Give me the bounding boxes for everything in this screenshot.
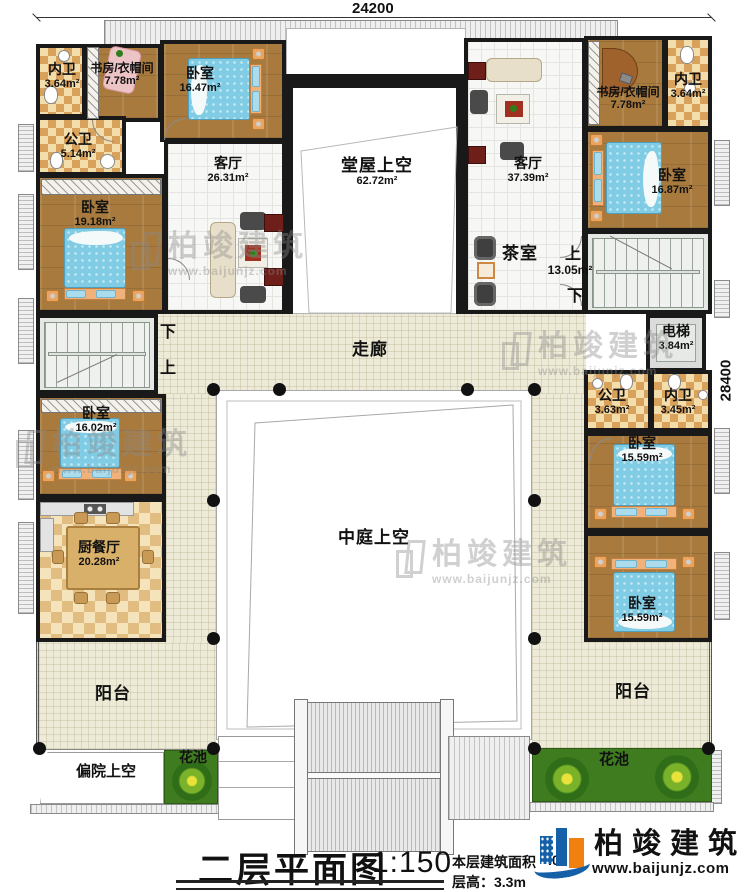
pillow (645, 560, 667, 568)
toilet (680, 46, 694, 64)
stairwell-east (584, 230, 712, 314)
entrance-roof-ridge (302, 772, 448, 779)
label-bath-w: 公卫5.14m² (61, 132, 96, 160)
plant-pot (510, 105, 517, 112)
stair-up-label-west: 上 (160, 354, 176, 378)
plant (655, 755, 699, 799)
pillow (615, 560, 637, 568)
sofa (486, 58, 542, 82)
pillow (66, 290, 86, 298)
entrance-roof-right (448, 736, 530, 820)
side-table (264, 214, 284, 232)
column (207, 632, 220, 645)
dining-chair (142, 550, 154, 564)
nightstand (594, 556, 607, 568)
nightstand (252, 118, 265, 130)
window-right-1 (714, 140, 730, 206)
label-bedroom-se2: 卧室15.59m² (622, 596, 663, 624)
closet-study-ne (588, 41, 600, 125)
coffee-table (496, 94, 530, 124)
label-study-ne: 书房/衣帽间7.78m² (596, 86, 659, 112)
floor-area-note: 本层建筑面积 (452, 852, 536, 872)
side-table (468, 62, 486, 80)
dining-chair (106, 512, 120, 524)
company-logo-name: 柏竣建筑 (594, 830, 746, 859)
plant-pot (116, 50, 123, 57)
label-bath-ne: 内卫3.64m² (671, 72, 706, 100)
label-living-e: 客厅37.39m² (508, 156, 549, 184)
window-left-4 (18, 430, 34, 500)
window-right-3 (714, 428, 730, 494)
railing-bottom-left (30, 804, 220, 814)
right-dimension-label: 28400 (717, 360, 734, 402)
label-corridor: 走廊 (352, 340, 388, 359)
label-living-w: 客厅26.31m² (208, 156, 249, 184)
nightstand (124, 470, 137, 482)
pillow (252, 91, 260, 112)
label-balcony-left: 阳台 (95, 684, 131, 703)
label-bath-se1: 公卫3.63m² (595, 388, 630, 416)
tea-chair (474, 282, 496, 306)
nightstand (252, 48, 265, 60)
pillow (615, 508, 637, 516)
window-right-2 (714, 280, 730, 318)
pillow (645, 508, 667, 516)
nightstand (590, 210, 603, 222)
plant (545, 757, 589, 801)
column (528, 383, 541, 396)
pillow (594, 152, 602, 175)
column (528, 494, 541, 507)
dining-chair (106, 592, 120, 604)
void-hall-opening-lines (287, 89, 465, 313)
floor-height-note: 层高：3.3m (452, 872, 526, 892)
dining-chair (52, 550, 64, 564)
closet-bedroom-w (41, 179, 161, 195)
entrance-roof-left (218, 736, 304, 820)
coffee-table (238, 238, 268, 268)
pillow (62, 470, 82, 478)
sink (698, 390, 708, 400)
nightstand (132, 290, 145, 302)
column (528, 632, 541, 645)
label-courtyard: 中庭上空 (338, 528, 410, 547)
drawing-title: 二层平面图 (198, 842, 388, 892)
column (273, 383, 286, 396)
title-underline-1 (176, 880, 444, 883)
window-left-1 (18, 124, 34, 172)
label-flowerbed-right: 花池 (599, 752, 629, 769)
nightstand (590, 134, 603, 146)
window-left-5 (18, 522, 34, 614)
label-study-nw: 书房/衣帽间7.78m² (90, 62, 153, 88)
tea-table (477, 262, 495, 279)
pillow (594, 179, 602, 202)
top-dimension-label: 24200 (352, 0, 394, 17)
label-tea-room: 茶室 (502, 244, 538, 263)
nightstand (594, 508, 607, 520)
label-void-hall: 堂屋上空62.72m² (341, 156, 413, 187)
courtyard-opening-lines (217, 391, 531, 739)
pillow (252, 66, 260, 87)
label-bedroom-se1: 卧室15.59m² (622, 436, 663, 464)
label-bedroom-w: 卧室19.18m² (75, 200, 116, 228)
pillow (92, 470, 112, 478)
column (702, 742, 715, 755)
top-dimension-line (36, 17, 712, 18)
window-right-4 (714, 552, 730, 620)
stair-down-label-west: 下 (160, 318, 176, 342)
bed-blanket-fold (69, 231, 123, 245)
label-elevator: 电梯3.84m² (659, 324, 694, 352)
railing-bottom-right (524, 802, 714, 812)
armchair (470, 90, 488, 114)
column (528, 742, 541, 755)
label-bedroom-ne: 卧室16.87m² (652, 168, 693, 196)
bed-mattress (64, 228, 126, 288)
floor-plan: 24200 28400 (0, 0, 750, 892)
dining-chair (74, 512, 88, 524)
stair-up-label-east: 上 (565, 240, 581, 264)
stairwell-west (36, 314, 158, 394)
nightstand (42, 470, 55, 482)
nightstand (682, 556, 695, 568)
side-table (264, 268, 284, 286)
column (207, 383, 220, 396)
armchair (240, 212, 266, 230)
label-bath-se2: 内卫3.45m² (661, 388, 696, 416)
plant-pot (250, 250, 257, 257)
nightstand (682, 508, 695, 520)
column (33, 742, 46, 755)
label-bedroom-nw: 卧室16.47m² (180, 66, 221, 94)
tea-chair (474, 236, 496, 260)
armchair (240, 286, 266, 303)
stair-rail (596, 270, 700, 274)
column (461, 383, 474, 396)
window-left-3 (18, 298, 34, 364)
sink (100, 154, 115, 169)
label-bedroom-sw: 卧室16.02m² (76, 406, 117, 434)
sofa (210, 222, 236, 298)
drawing-scale: 1:150 (372, 846, 452, 880)
void-hall-wall-top (286, 74, 466, 88)
company-logo-icon (536, 826, 590, 878)
window-left-2 (18, 194, 34, 270)
label-balcony-right: 阳台 (615, 682, 651, 701)
nightstand (46, 290, 59, 302)
corridor-right (532, 394, 584, 644)
void-courtyard (216, 390, 532, 740)
label-flowerbed-left: 花池 (179, 750, 207, 766)
stair-area-label-east: 13.05m² (548, 264, 593, 277)
kitchen-sink (40, 518, 54, 552)
corridor-left (166, 394, 216, 644)
plant (172, 761, 212, 801)
title-underline-2 (176, 888, 444, 890)
column (207, 742, 220, 755)
side-table (468, 146, 486, 164)
column (207, 494, 220, 507)
company-logo-url: www.baijunjz.com (592, 860, 729, 877)
label-bath-nw: 内卫3.64m² (45, 62, 80, 90)
stair-down-label-east: 下 (567, 282, 583, 306)
entrance-post-left (294, 699, 308, 855)
dining-chair (74, 592, 88, 604)
label-side-court: 偏院上空 (76, 764, 136, 781)
label-kitchen: 厨餐厅20.28m² (78, 540, 120, 568)
pillow (96, 290, 116, 298)
stair-rail (48, 352, 146, 356)
